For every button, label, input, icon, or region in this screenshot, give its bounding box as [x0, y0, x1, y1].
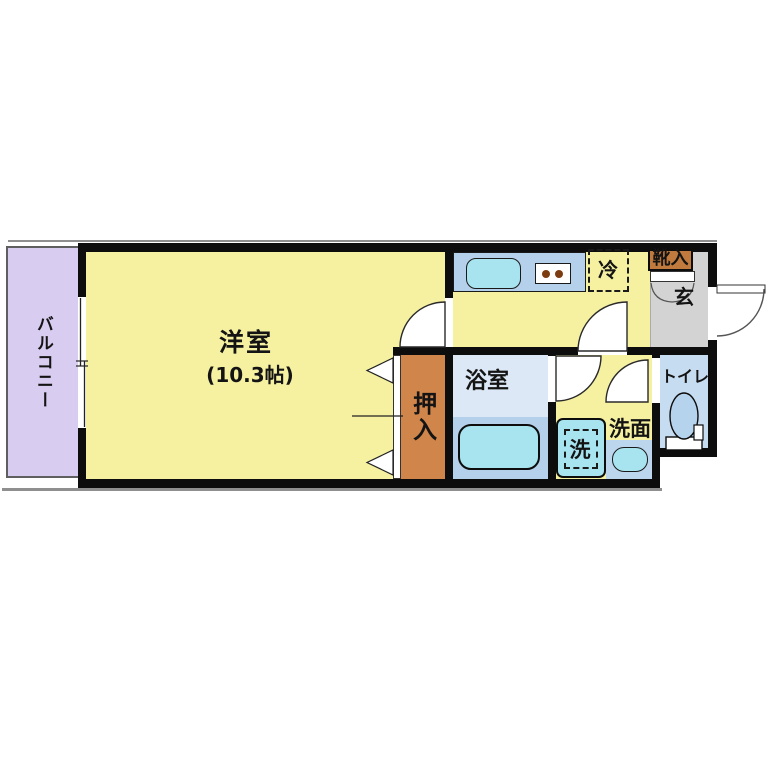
vanity-label: 洗面 [607, 417, 653, 441]
bathroom-label: 浴室 [460, 369, 514, 394]
entrance-door-swing-icon [717, 289, 764, 336]
balcony-label: バルコニー [24, 300, 60, 425]
closet-arrow-icon [367, 450, 393, 475]
closet-arrow-icon [367, 358, 393, 383]
entrance-label: 玄 [673, 286, 695, 308]
door-swing-icon [606, 360, 648, 402]
shoe-cabinet-label: 靴入 [650, 249, 691, 270]
symbols-overlay [0, 0, 768, 768]
toilet-tank-icon [694, 425, 703, 440]
floorplan-canvas: バルコニー 洋室 (10.3帖) 押入 浴室 洗 洗面 トイレ 冷 靴入 玄 [0, 0, 768, 768]
door-swing-icon [556, 356, 601, 401]
room-size-label: (10.3帖) [180, 363, 320, 387]
cabinet-door-arc-icon [651, 283, 672, 302]
washer-label: 洗 [568, 438, 592, 462]
toilet-label: トイレ [661, 368, 709, 386]
closet-label: 押入 [406, 386, 438, 448]
entrance-door-leaf-icon [717, 285, 765, 293]
fridge-label: 冷 [597, 259, 619, 281]
room-label: 洋室 [186, 328, 306, 358]
door-swing-icon [400, 302, 445, 347]
door-swing-icon [578, 302, 627, 351]
